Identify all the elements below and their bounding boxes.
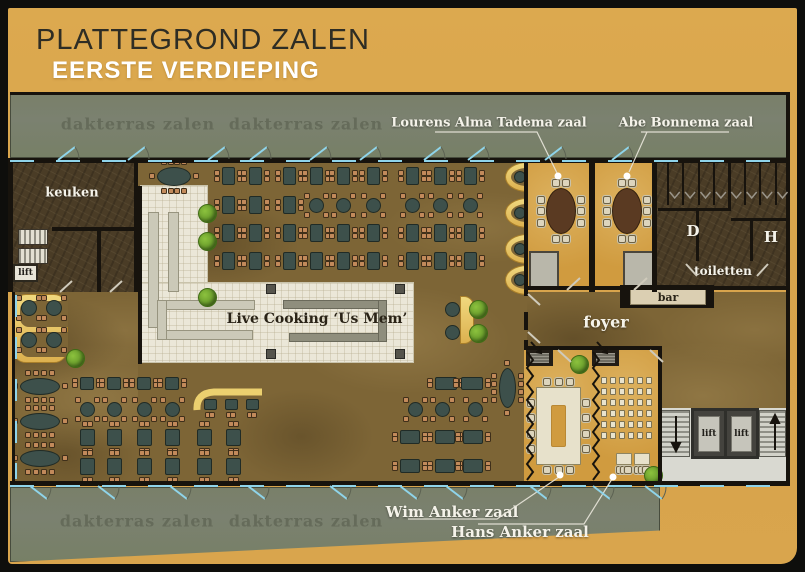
lift-left-label: lift: [702, 429, 717, 439]
service-lift: lift: [13, 264, 38, 282]
chair: [504, 360, 510, 366]
chair: [160, 397, 166, 403]
chair: [518, 373, 524, 379]
chair: [49, 469, 55, 475]
table: [367, 224, 380, 242]
chair: [643, 219, 651, 227]
chair: [62, 455, 68, 461]
chair: [455, 465, 461, 471]
chair: [144, 421, 150, 427]
chair: [552, 179, 560, 187]
window-band-left: [15, 295, 17, 479]
theater-chair: [619, 377, 625, 384]
table: [367, 167, 380, 185]
table: [434, 252, 447, 270]
chair: [25, 469, 31, 475]
chair: [449, 233, 455, 239]
stall-divider: [698, 163, 700, 205]
service-lift-label: lift: [18, 268, 33, 278]
chair: [482, 397, 488, 403]
chair: [214, 261, 220, 267]
chair: [392, 465, 398, 471]
theater-chair: [637, 399, 643, 406]
chair: [527, 445, 535, 453]
chair: [33, 432, 39, 438]
chair: [114, 450, 120, 456]
chair: [94, 416, 100, 422]
theater-chair: [610, 388, 616, 395]
chair: [624, 466, 632, 474]
chair: [102, 416, 108, 422]
stall-divider: [667, 163, 669, 205]
pillar: [395, 284, 405, 294]
table: [249, 224, 262, 242]
chair: [562, 235, 570, 243]
chair: [41, 347, 47, 353]
theater-chair: [601, 399, 607, 406]
wall: [524, 288, 528, 296]
toilets-label: toiletten: [694, 264, 752, 278]
chair: [168, 188, 174, 194]
chair: [41, 315, 47, 321]
table: [226, 458, 241, 475]
table: [283, 167, 296, 185]
chair: [233, 421, 239, 427]
theater-chair: [646, 421, 652, 428]
chair: [537, 207, 545, 215]
table: [445, 325, 460, 340]
table: [310, 167, 323, 185]
wall: [527, 286, 655, 290]
chair: [361, 212, 367, 218]
chair: [304, 212, 310, 218]
theater-chair: [601, 410, 607, 417]
plant: [198, 288, 217, 307]
chair: [75, 397, 81, 403]
chair: [449, 416, 455, 422]
bar-counter: bar: [630, 289, 706, 305]
theater-chair: [637, 410, 643, 417]
chair: [543, 466, 551, 474]
chair: [618, 235, 626, 243]
stairs-down: [660, 410, 690, 457]
chair: [33, 397, 39, 403]
table: [546, 188, 576, 234]
table: [463, 430, 483, 444]
table: [435, 430, 455, 444]
table: [408, 402, 423, 417]
chair: [419, 193, 425, 199]
chair: [555, 466, 563, 474]
chair: [566, 466, 574, 474]
window-band-top: [10, 160, 790, 162]
chair: [426, 261, 432, 267]
stall-divider: [759, 163, 761, 205]
table: [249, 196, 262, 214]
cooking-station: [289, 333, 386, 342]
table: [283, 224, 296, 242]
chair: [482, 416, 488, 422]
live-cooking-label: Live Cooking ‘Us Mem’: [227, 311, 408, 327]
chair: [403, 416, 409, 422]
chair: [392, 436, 398, 442]
table: [165, 429, 180, 446]
chair: [504, 410, 510, 416]
chair: [49, 442, 55, 448]
chair: [485, 465, 491, 471]
u-table-hole: [551, 405, 566, 447]
chair: [458, 193, 464, 199]
kitchen-stairs: [18, 229, 48, 245]
cabinet: [529, 251, 559, 288]
plant: [570, 355, 589, 374]
chair: [61, 347, 67, 353]
chair: [552, 235, 560, 243]
chair: [302, 261, 308, 267]
table: [434, 224, 447, 242]
chair: [426, 233, 432, 239]
wall: [8, 158, 13, 292]
terrace-label: dakterras zalen: [229, 512, 383, 531]
table: [197, 458, 212, 475]
chair: [62, 383, 68, 389]
chair: [275, 261, 281, 267]
toilet-h-label: H: [764, 228, 778, 246]
chair: [427, 382, 433, 388]
page-title: PLATTEGROND ZALEN: [36, 24, 370, 57]
table: [197, 429, 212, 446]
table: [283, 196, 296, 214]
table: [107, 402, 122, 417]
chair: [398, 176, 404, 182]
theater-chair: [610, 377, 616, 384]
chair: [275, 205, 281, 211]
stall-divider: [744, 163, 746, 205]
chair: [456, 176, 462, 182]
chair: [329, 261, 335, 267]
chair: [582, 414, 590, 422]
theater-chair: [610, 410, 616, 417]
chair: [33, 370, 39, 376]
theater-chair: [646, 410, 652, 417]
theater-chair: [619, 388, 625, 395]
table: [461, 377, 483, 390]
chair: [275, 176, 281, 182]
table: [46, 300, 62, 316]
theater-chair: [610, 399, 616, 406]
chair: [582, 399, 590, 407]
theater-chair: [628, 377, 634, 384]
chair: [41, 397, 47, 403]
chair: [518, 397, 524, 403]
page-subtitle: EERSTE VERDIEPING: [52, 57, 320, 85]
chair: [160, 416, 166, 422]
chair: [87, 450, 93, 456]
buffet-counter: [157, 330, 253, 340]
table: [434, 167, 447, 185]
chair: [555, 378, 563, 386]
chair: [350, 212, 356, 218]
theater-chair: [628, 421, 634, 428]
theater-chair: [646, 432, 652, 439]
theater-chair: [619, 410, 625, 417]
chair: [181, 188, 187, 194]
table: [222, 167, 235, 185]
chair: [428, 193, 434, 199]
terrace-label: dakterras zalen: [61, 115, 215, 134]
chair: [323, 212, 329, 218]
wall: [52, 227, 138, 231]
toilet-d-label: D: [686, 222, 699, 240]
chair: [151, 397, 157, 403]
table: [21, 300, 37, 316]
wall: [524, 312, 528, 330]
chair: [298, 205, 304, 211]
table: [464, 224, 477, 242]
chair: [582, 445, 590, 453]
chair: [427, 436, 433, 442]
chair: [25, 442, 31, 448]
kitchen-stairs: [18, 248, 48, 264]
chair: [577, 207, 585, 215]
chair: [426, 176, 432, 182]
chair: [49, 397, 55, 403]
chair: [132, 397, 138, 403]
chair: [25, 405, 31, 411]
theater-chair: [637, 432, 643, 439]
table: [137, 429, 152, 446]
table: [204, 399, 217, 410]
chair: [230, 412, 236, 418]
chair: [204, 450, 210, 456]
kitchen-label: keuken: [45, 186, 98, 201]
chair: [99, 382, 105, 388]
room-label-abe-bonnema: Abe Bonnema zaal: [619, 116, 754, 131]
chair: [527, 430, 535, 438]
table: [337, 167, 350, 185]
chair: [41, 405, 47, 411]
chair: [352, 233, 358, 239]
chair: [518, 381, 524, 387]
theater-chair: [619, 432, 625, 439]
buffet-counter: [168, 212, 179, 292]
chair: [75, 416, 81, 422]
chair: [359, 233, 365, 239]
table: [20, 413, 60, 430]
chair: [41, 295, 47, 301]
table: [463, 459, 483, 473]
chair: [449, 176, 455, 182]
theater-chair: [646, 377, 652, 384]
stall-divider: [775, 163, 777, 205]
chair: [49, 432, 55, 438]
chair: [427, 465, 433, 471]
chair: [49, 370, 55, 376]
chair: [241, 205, 247, 211]
chair: [172, 450, 178, 456]
table: [165, 402, 180, 417]
chair: [87, 421, 93, 427]
chair: [264, 205, 270, 211]
stall-divider: [729, 163, 731, 205]
table: [464, 167, 477, 185]
table: [612, 188, 642, 234]
chair: [422, 416, 428, 422]
chair: [179, 416, 185, 422]
chair: [352, 176, 358, 182]
room-label-alma-tadema: Lourens Alma Tadema zaal: [391, 116, 587, 131]
table: [433, 198, 448, 213]
theater-chair: [637, 388, 643, 395]
chair: [382, 261, 388, 267]
chair: [400, 212, 406, 218]
chair: [33, 442, 39, 448]
chair: [331, 193, 337, 199]
chair: [302, 176, 308, 182]
chair: [25, 432, 31, 438]
window-band-bottom: [10, 485, 790, 487]
wall: [658, 208, 731, 211]
wall: [524, 346, 662, 350]
lift-left: lift: [698, 416, 720, 452]
chair: [329, 176, 335, 182]
chair: [477, 193, 483, 199]
chair: [41, 469, 47, 475]
table: [107, 377, 121, 390]
chair: [121, 416, 127, 422]
table: [463, 198, 478, 213]
table: [225, 399, 238, 410]
chair: [149, 173, 155, 179]
chair: [329, 233, 335, 239]
chair: [577, 196, 585, 204]
plant: [198, 232, 217, 251]
stairs-up: [759, 410, 786, 457]
chair: [359, 261, 365, 267]
theater-chair: [637, 377, 643, 384]
closet-shelves: [530, 353, 549, 363]
chair: [422, 397, 428, 403]
wall: [652, 158, 657, 292]
chair: [204, 421, 210, 427]
chair: [350, 193, 356, 199]
lift-right-label: lift: [734, 429, 749, 439]
wall: [731, 218, 790, 221]
table: [367, 252, 380, 270]
table: [310, 252, 323, 270]
chair: [582, 430, 590, 438]
table: [337, 224, 350, 242]
chair: [331, 212, 337, 218]
chair: [479, 233, 485, 239]
chair: [455, 436, 461, 442]
chair: [398, 261, 404, 267]
chair: [241, 261, 247, 267]
chair: [463, 397, 469, 403]
lift-right: lift: [731, 416, 752, 452]
storage-closet: [592, 350, 619, 366]
plant: [66, 349, 85, 368]
plant: [469, 324, 488, 343]
chair: [527, 414, 535, 422]
theater-chair: [628, 388, 634, 395]
chair: [49, 405, 55, 411]
chair: [275, 233, 281, 239]
chair: [428, 212, 434, 218]
chair: [144, 450, 150, 456]
storage-closet: [526, 350, 553, 366]
chair: [61, 327, 67, 333]
table: [80, 377, 94, 390]
chair: [172, 421, 178, 427]
wall: [658, 346, 662, 483]
chair: [62, 418, 68, 424]
theater-chair: [628, 410, 634, 417]
theater-chair: [601, 421, 607, 428]
table: [405, 198, 420, 213]
chair: [302, 233, 308, 239]
chair: [382, 233, 388, 239]
table: [107, 458, 122, 475]
wall: [10, 92, 790, 95]
chair: [380, 193, 386, 199]
chair: [477, 212, 483, 218]
foyer-label: foyer: [583, 313, 628, 332]
chair: [419, 212, 425, 218]
stall-divider: [713, 163, 715, 205]
table: [222, 252, 235, 270]
chair: [643, 196, 651, 204]
chair: [352, 261, 358, 267]
table: [222, 224, 235, 242]
table: [499, 368, 516, 408]
plant: [198, 204, 217, 223]
chair: [129, 382, 135, 388]
wall: [138, 186, 142, 364]
table: [80, 458, 95, 475]
table: [366, 198, 381, 213]
table: [435, 402, 450, 417]
table: [20, 378, 60, 395]
chair: [430, 397, 436, 403]
chair: [41, 432, 47, 438]
chair: [603, 196, 611, 204]
table: [20, 450, 60, 467]
theater-chair: [637, 421, 643, 428]
chair: [479, 176, 485, 182]
table: [137, 458, 152, 475]
table: [249, 252, 262, 270]
chair: [603, 219, 611, 227]
chair: [179, 397, 185, 403]
chair: [233, 450, 239, 456]
table: [137, 377, 151, 390]
table: [107, 429, 122, 446]
table: [445, 302, 460, 317]
chair: [537, 196, 545, 204]
wall: [655, 286, 790, 290]
theater-chair: [646, 399, 652, 406]
theater-chair: [601, 377, 607, 384]
chair: [41, 327, 47, 333]
theater-chair: [646, 388, 652, 395]
chair: [102, 397, 108, 403]
chair: [449, 397, 455, 403]
table: [464, 252, 477, 270]
chair: [193, 173, 199, 179]
chair: [628, 235, 636, 243]
pillar: [395, 349, 405, 359]
